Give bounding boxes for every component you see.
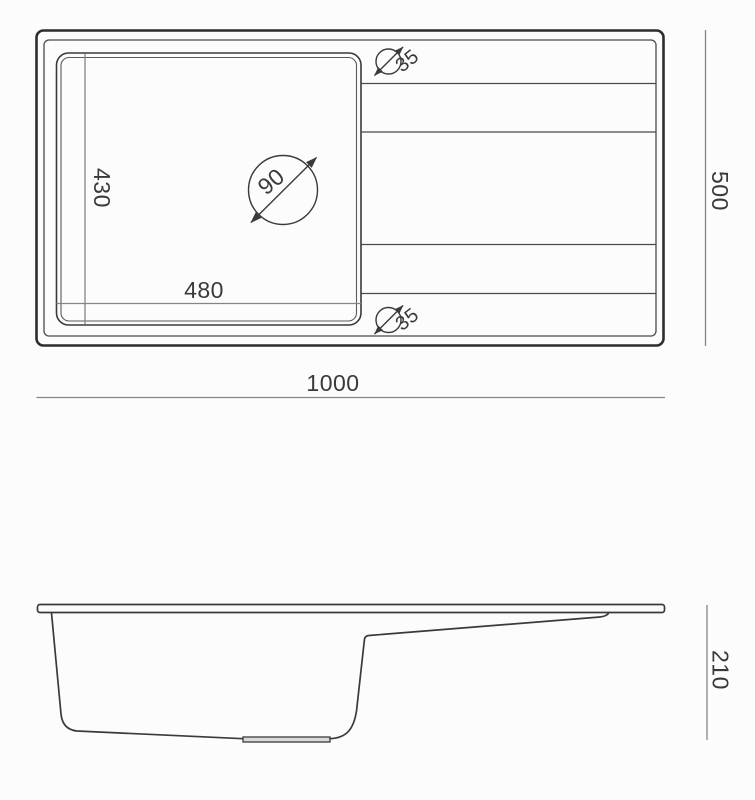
faucet-hole-top: 35 (375, 45, 424, 77)
height-label: 210 (708, 650, 734, 690)
drain-hole: 90 (249, 156, 318, 225)
overall-width-label: 1000 (306, 370, 359, 396)
faucet-hole-top-label: 35 (392, 45, 424, 77)
sink-outer-rim (37, 31, 664, 346)
top-view: 430 480 90 35 35 500 (37, 30, 734, 398)
drain-boss (243, 737, 330, 742)
drain-diameter-label: 90 (253, 163, 290, 200)
sink-technical-drawing: 430 480 90 35 35 500 (0, 0, 755, 800)
basin-profile-left (52, 613, 244, 739)
drawing-svg: 430 480 90 35 35 500 (0, 0, 755, 800)
rim-profile (38, 605, 665, 613)
side-view: 210 (38, 605, 734, 743)
overall-depth-label: 500 (707, 171, 733, 211)
basin-width-label: 480 (184, 277, 224, 303)
faucet-hole-bottom: 35 (375, 304, 424, 336)
basin-depth-label: 430 (89, 168, 115, 208)
drainboard (361, 84, 656, 294)
faucet-hole-bottom-label: 35 (392, 304, 424, 336)
basin-profile-right (330, 613, 609, 739)
sink-inner-rim (44, 40, 656, 336)
